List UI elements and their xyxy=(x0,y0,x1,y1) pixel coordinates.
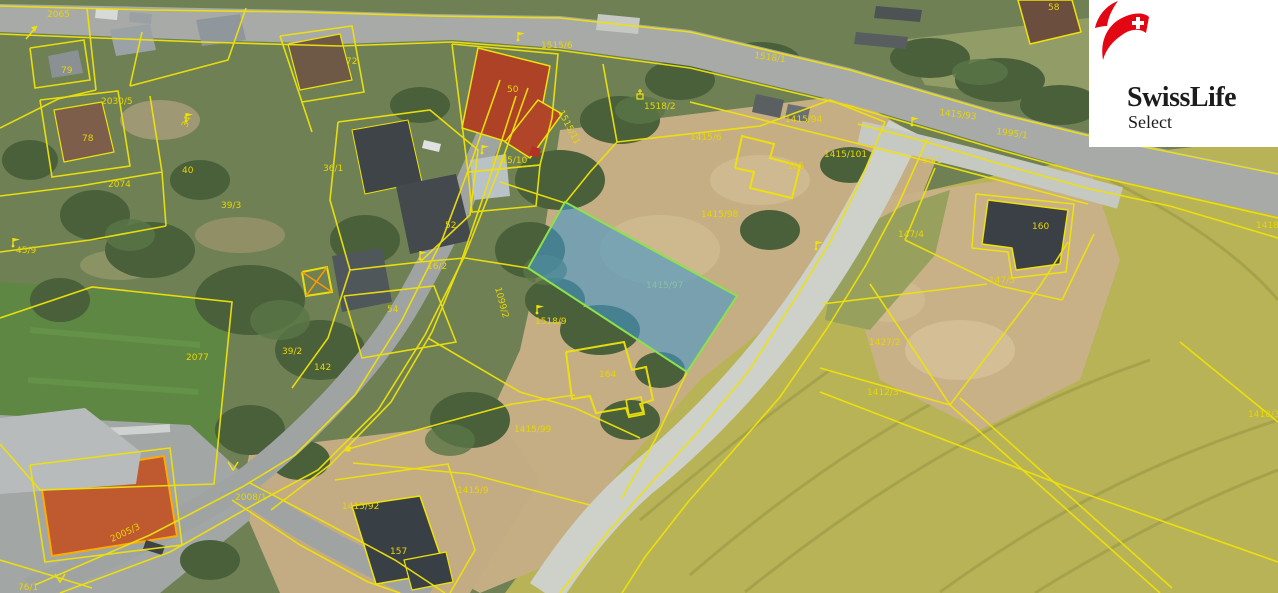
parcel-label: 1515/6 xyxy=(541,41,573,51)
parcel-label: 52 xyxy=(445,221,456,231)
parcel-label: 2065 xyxy=(47,10,70,20)
parcel-label: 1518/2 xyxy=(644,102,676,112)
parcel-label: 2030/5 xyxy=(101,97,133,107)
parcel-label: 1412/3 xyxy=(867,388,899,398)
parcel-label: 36/1 xyxy=(323,164,343,174)
parcel-label: 165 xyxy=(787,162,804,172)
parcel-label: 1415/98 xyxy=(701,210,739,220)
square-symbol xyxy=(346,447,351,452)
parcel-label: 2074 xyxy=(108,180,131,190)
parcel-label: 78 xyxy=(82,134,94,144)
parcel-label: 40 xyxy=(182,166,194,176)
parcel-label: 1415/9 xyxy=(457,486,489,496)
parcel-label: 72 xyxy=(346,57,357,67)
parcel-label: 16/2 xyxy=(427,262,447,272)
logo-brand-text: SwissLife xyxy=(1127,82,1236,114)
swiss-flag-icon xyxy=(1089,0,1153,70)
parcel-label: 1427/2 xyxy=(869,338,901,348)
parcel-label: 2077 xyxy=(186,353,209,363)
parcel-label: 1418/3 xyxy=(1248,410,1278,420)
parcel-label: 45/9 xyxy=(16,246,36,256)
parcel-label: 58 xyxy=(1048,3,1060,13)
parcel-label: 39/2 xyxy=(282,347,302,357)
parcel-label: 1415/92 xyxy=(342,502,379,512)
parcel-label: 58/1 xyxy=(922,156,942,166)
building-54-dark-roof xyxy=(332,248,392,312)
parcel-label: 79 xyxy=(61,66,73,76)
car xyxy=(129,12,152,24)
parcel-label: 1418/5 xyxy=(1256,221,1278,231)
parcel-label: 50 xyxy=(507,85,519,95)
swiss-cross-horizontal xyxy=(1132,21,1144,25)
swisslife-logo: SwissLife Select xyxy=(1089,0,1278,147)
parcel-label: 1415/99 xyxy=(514,425,552,435)
parcel-label: 1415/94 xyxy=(785,115,823,125)
parcel-label: 1415/6 xyxy=(690,133,722,143)
parcel-label: 164 xyxy=(599,370,616,380)
parcel-label: 1415/97 xyxy=(646,281,683,291)
parcel-label: 2008/1 xyxy=(235,493,267,503)
swisslife-logo-card: SwissLife Select xyxy=(1089,0,1278,147)
parcel-label: 142 xyxy=(314,363,331,373)
parcel-label: 1415/101 xyxy=(824,150,867,160)
logo-product-text: Select xyxy=(1128,112,1172,133)
parcel-label: 1515/10 xyxy=(490,156,528,166)
parcel-label: 39/3 xyxy=(221,201,241,211)
aerial-map-screenshot: 2065792030/5783440207445/939/336/1725216… xyxy=(0,0,1278,593)
building-72-roof xyxy=(288,34,352,90)
parcel-label: 160 xyxy=(1032,222,1049,232)
parcel-label: 54 xyxy=(387,305,399,315)
parcel-label: 1518/9 xyxy=(535,317,567,327)
parcel-label: 147/4 xyxy=(898,230,924,240)
parcel-label: 76/1 xyxy=(18,583,38,593)
parcel-label: 157 xyxy=(390,547,407,557)
parcel-label: 147/5 xyxy=(989,276,1015,286)
aerial-map: 2065792030/5783440207445/939/336/1725216… xyxy=(0,0,1278,593)
